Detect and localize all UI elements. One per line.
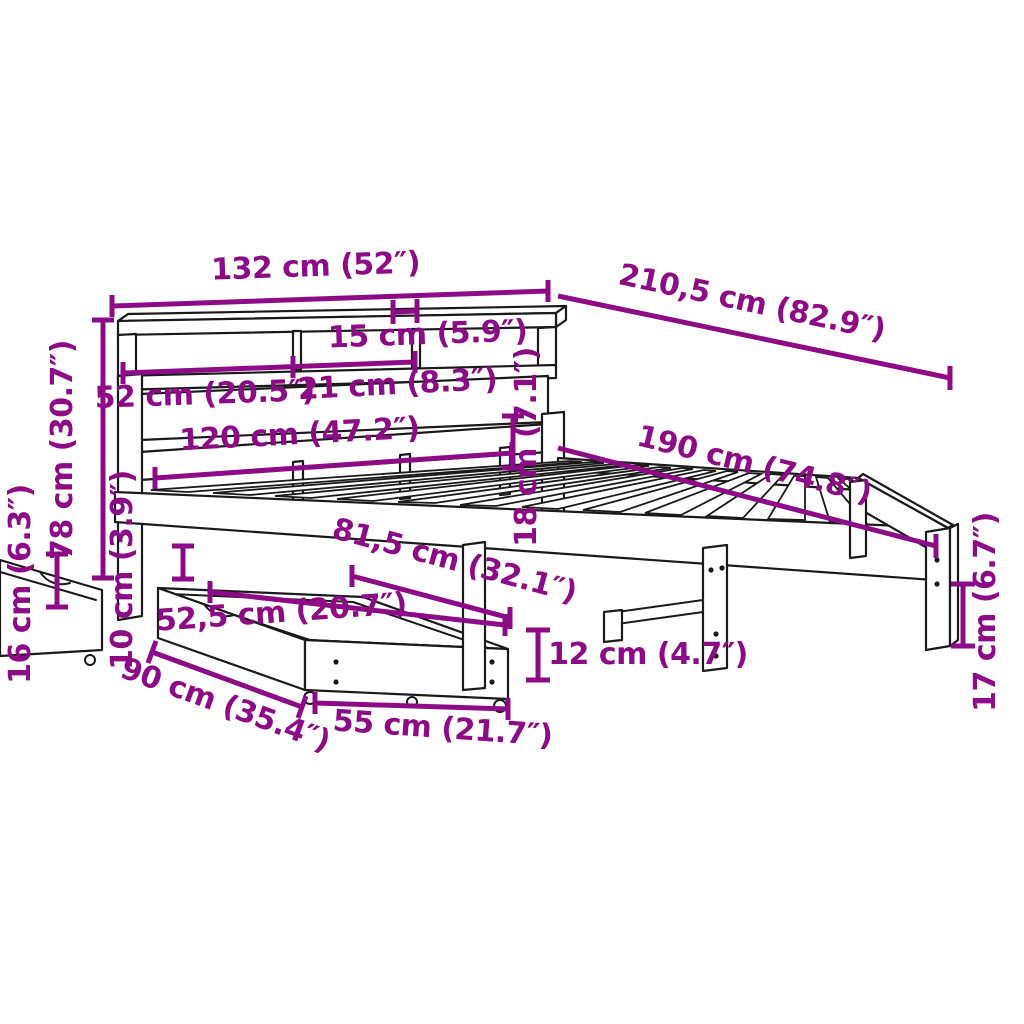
screw [333,659,338,664]
dim-headboard-height: 78 cm (30.7″) [45,320,114,578]
dim-headboard-width: 132 cm (52″) [112,245,548,317]
dim-shelf-slot-width-label: 15 cm (5.9″) [327,314,528,356]
dim-drawer-height-label: 12 cm (4.7″) [548,637,748,672]
center-rail-strut [610,600,703,625]
screw [489,679,494,684]
dim-headboard-width-label: 132 cm (52″) [211,245,421,287]
dim-ground-clearance-label: 16 cm (6.3″) [3,484,38,684]
screw [333,679,338,684]
dim-drawer-height: 12 cm (4.7″) [526,630,748,680]
dim-drawer-front-width-label: 55 cm (21.7″) [332,703,554,753]
screw [489,659,494,664]
screw [708,567,713,572]
dim-drawer-front-width: 55 cm (21.7″) [315,692,554,754]
dim-frame-height-label: 18 cm (7.1″) [509,347,544,547]
screw [719,565,724,570]
screw [713,631,718,636]
caster-wheel [85,655,95,665]
dim-gap-under-rail-label: 10 cm (3.9″) [105,470,140,670]
dim-total-length: 210,5 cm (82.9″) [558,257,950,390]
bed-dimension-diagram: 132 cm (52″) 210,5 cm (82.9″) 15 cm (5.9… [0,0,1024,1024]
dim-line [526,630,550,680]
dim-leg-height-label: 17 cm (6.7″) [968,512,1003,712]
diagram-canvas: 132 cm (52″) 210,5 cm (82.9″) 15 cm (5.9… [0,0,1024,1024]
screw [934,581,939,586]
screw [934,557,939,562]
dim-line [172,546,194,579]
dim-headboard-height-label: 78 cm (30.7″) [45,340,80,560]
dim-frame-height: 18 cm (7.1″) [502,347,544,547]
